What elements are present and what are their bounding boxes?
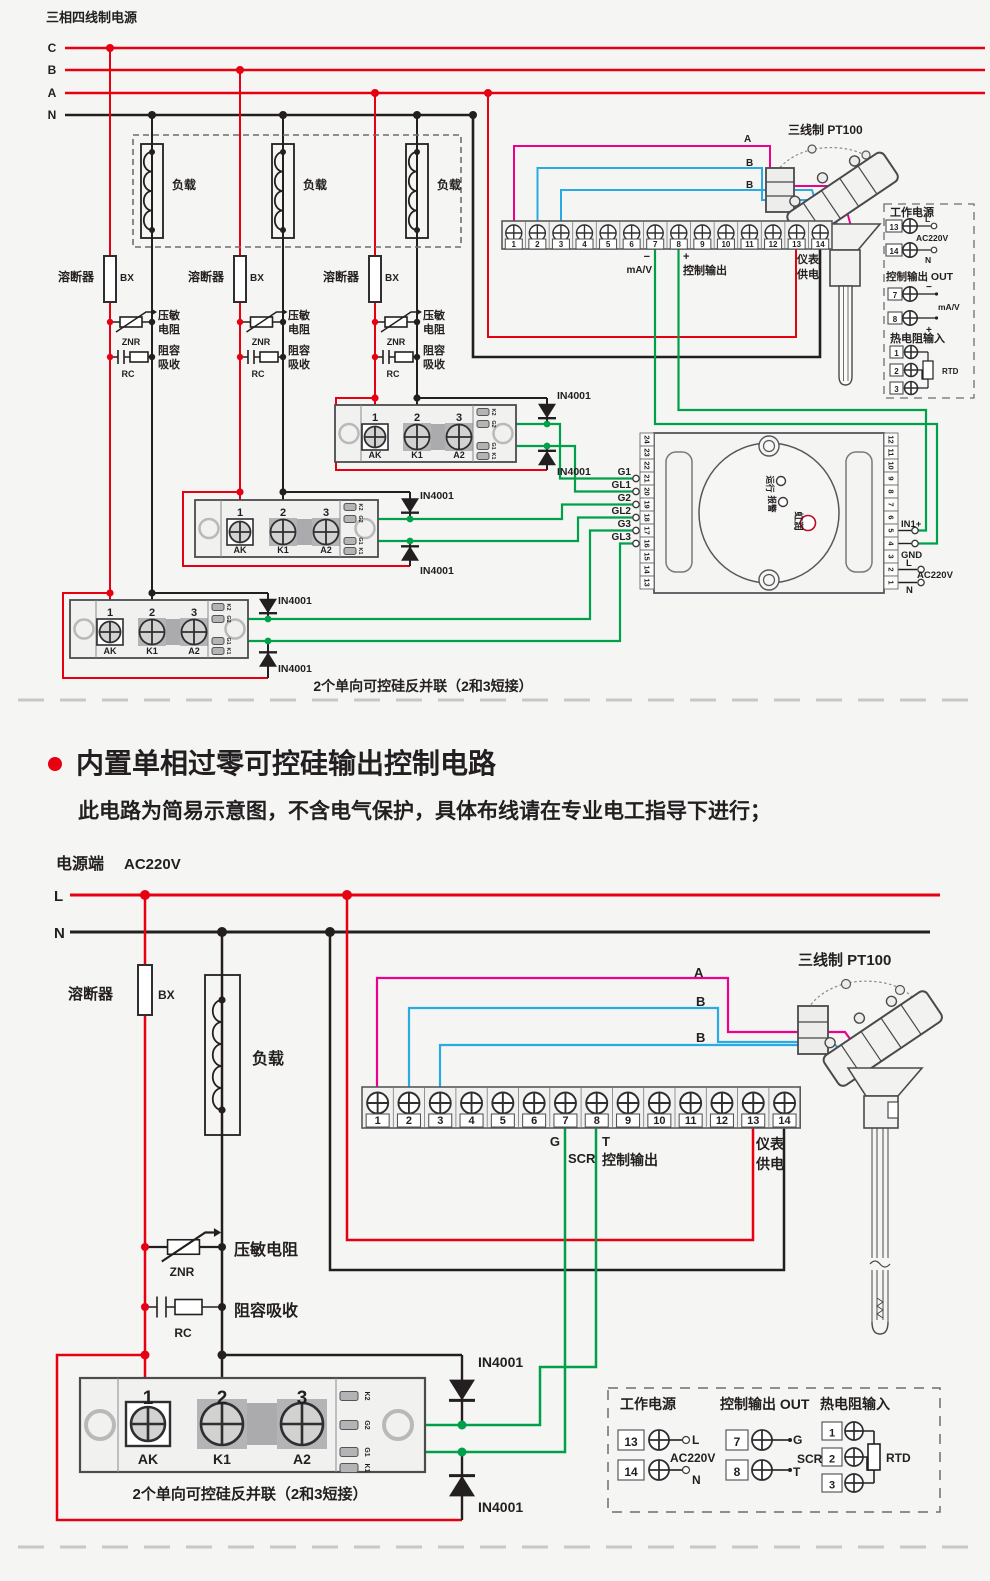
controller-n-label: N xyxy=(906,585,913,596)
junction-dot xyxy=(265,638,272,645)
legend-dot xyxy=(788,1468,792,1472)
legend-ac: AC220V xyxy=(670,1451,715,1465)
terminal-number: 11 xyxy=(685,1115,697,1127)
strip-ctrl-out: 控制输出 xyxy=(602,1152,658,1168)
diode-label: IN4001 xyxy=(557,466,591,478)
module-terminal-number: 2 xyxy=(414,412,420,424)
znr-label: 电阻 xyxy=(423,322,445,336)
gate-terminal-label: K2 xyxy=(490,408,496,415)
junction-dot xyxy=(218,1303,226,1311)
legend-rtd: RTD xyxy=(942,367,959,376)
legend-mav: mA/V xyxy=(938,302,960,312)
controller-terminal-number: 11 xyxy=(887,449,896,457)
junction-dot xyxy=(544,421,551,428)
legend-dot xyxy=(935,292,938,295)
rc-code: RC xyxy=(174,1326,192,1340)
controller-screw-bottom xyxy=(759,570,779,590)
junction-dot xyxy=(280,319,286,325)
controller-screw-top xyxy=(759,436,779,456)
gate-terminal xyxy=(340,1421,358,1430)
legend-terminal-number: 14 xyxy=(624,1465,638,1479)
gate-terminal xyxy=(212,616,224,623)
legend-t: T xyxy=(793,1465,801,1479)
strip-g: G xyxy=(550,1134,560,1149)
junction-dot xyxy=(237,319,243,325)
terminal-number: 5 xyxy=(606,240,611,249)
terminal-number: 14 xyxy=(816,240,825,249)
legend-terminal-number: 8 xyxy=(893,315,898,324)
gate-terminal-label: K1 xyxy=(225,647,231,654)
junction-dot xyxy=(107,319,113,325)
znr-label: 电阻 xyxy=(288,322,310,336)
resistor-icon xyxy=(260,352,278,362)
controller-terminal-number: 2 xyxy=(887,567,896,571)
legend-terminal-number: 13 xyxy=(624,1435,638,1449)
legend-rtd: RTD xyxy=(886,1451,911,1465)
fuse-label: 溶断器 xyxy=(323,269,360,284)
controller-terminal-number: 6 xyxy=(887,515,896,519)
controller-terminal-strip: 121110987654321 xyxy=(884,433,898,589)
legend-terminal-number: 8 xyxy=(734,1465,741,1479)
legend-out-title: 控制输出 OUT xyxy=(720,1396,810,1412)
legend-terminal-number: 7 xyxy=(734,1435,741,1449)
junction-dot xyxy=(414,319,420,325)
legend-plus: + xyxy=(926,325,932,336)
diode-label: IN4001 xyxy=(478,1354,523,1370)
junction-dot xyxy=(148,111,156,119)
controller-terminal-number: 3 xyxy=(887,554,896,558)
controller-terminal-strip: 242322212019181716151413 xyxy=(640,433,654,589)
terminal-ring xyxy=(633,488,639,494)
module-terminal-label: K1 xyxy=(213,1451,231,1467)
controller-l-label: L xyxy=(906,558,912,569)
rc-code: RC xyxy=(387,369,400,379)
controller-terminal-number: 1 xyxy=(887,580,896,584)
legend-rtd-resistor xyxy=(868,1444,880,1470)
gate-terminal xyxy=(344,504,356,511)
junction-dot xyxy=(236,488,243,495)
caption-top: 2个单向可控硅反并联（2和3短接） xyxy=(313,678,532,694)
junction-dot xyxy=(218,1243,226,1251)
sensor-hex-fitting xyxy=(766,168,794,212)
strip-meter-supply: 仪表 xyxy=(796,252,820,266)
wire-label-a: A xyxy=(744,134,751,145)
junction-dot xyxy=(237,354,243,360)
fuse-code: BX xyxy=(158,988,175,1002)
junction-dot xyxy=(407,516,414,523)
legend-rtd-title: 热电阻输入 xyxy=(820,1396,890,1412)
junction-dot xyxy=(325,927,335,937)
junction-dot xyxy=(265,616,272,623)
junction-dot xyxy=(371,89,379,97)
znr-code: ZNR xyxy=(170,1265,195,1279)
controller-terminal-number: 7 xyxy=(887,502,896,506)
gate-terminal-label: K2 xyxy=(357,503,363,510)
section-title: 内置单相过零可控硅输出控制电路 xyxy=(76,747,497,779)
diode-label: IN4001 xyxy=(278,663,312,675)
strip-meter-supply: 仪表 xyxy=(755,1136,785,1152)
terminal-number: 13 xyxy=(792,240,801,249)
terminal-number: 12 xyxy=(716,1115,728,1127)
junction-dot xyxy=(218,996,225,1003)
znr-code: ZNR xyxy=(387,337,406,347)
junction-dot xyxy=(371,394,378,401)
rc-label: 阻容吸收 xyxy=(234,1301,298,1320)
controller-terminal-number: 8 xyxy=(887,489,896,493)
gate-terminal-label: K1 xyxy=(357,547,363,554)
terminal-ring xyxy=(633,514,639,520)
brand-label: 虹润 xyxy=(792,511,804,530)
controller-terminal-number: 24 xyxy=(643,435,652,444)
junction-dot xyxy=(279,111,287,119)
junction-dot xyxy=(280,227,286,233)
module-terminal-number: 3 xyxy=(456,412,462,424)
legend-terminal-number: 1 xyxy=(829,1428,835,1440)
diode-label: IN4001 xyxy=(478,1499,523,1515)
resistor-icon xyxy=(395,352,413,362)
junction-dot xyxy=(407,538,414,545)
junction-dot xyxy=(218,1106,225,1113)
legend-dot xyxy=(788,1438,792,1442)
sensor-probe xyxy=(839,286,852,385)
sensor-screw-icon xyxy=(808,145,816,153)
controller-terminal-number: 23 xyxy=(643,448,652,456)
rc-label: 阻容 xyxy=(158,343,180,357)
phase-label-b: B xyxy=(48,63,57,77)
gate-label-gl3: GL3 xyxy=(612,532,632,543)
gate-terminal xyxy=(344,538,356,545)
module-terminal-number: 1 xyxy=(237,507,243,519)
gate-label-gl1: GL1 xyxy=(612,480,632,491)
sensor-screw-icon xyxy=(842,980,851,989)
diode-label: IN4001 xyxy=(420,565,454,577)
rc-label: 阻容 xyxy=(423,343,445,357)
gate-terminal-label: G1 xyxy=(490,442,496,449)
legend-n: N xyxy=(925,255,931,265)
gate-terminal xyxy=(340,1392,358,1401)
controller-terminal-number: 14 xyxy=(643,565,652,574)
terminal-number: 2 xyxy=(535,240,540,249)
gate-label-gl2: GL2 xyxy=(612,506,632,517)
terminal-number: 4 xyxy=(582,240,587,249)
load-label: 负载 xyxy=(437,177,461,192)
strip-plus: + xyxy=(683,251,689,263)
gate-terminal-label: G1 xyxy=(225,637,231,644)
supply-label: 电源端 xyxy=(56,854,104,873)
znr-label: 压敏电阻 xyxy=(234,1240,298,1259)
controller xyxy=(654,433,884,593)
line-label-n: N xyxy=(54,925,65,942)
terminal-number: 12 xyxy=(769,240,778,249)
legend-g: G xyxy=(793,1433,802,1447)
gate-label-g2: G2 xyxy=(618,493,632,504)
junction-dot xyxy=(217,927,227,937)
junction-dot xyxy=(458,1421,467,1430)
gate-terminal xyxy=(477,453,489,460)
legend-out-title: 控制输出 OUT xyxy=(886,270,954,283)
scr-module: 1AK2K13A2K2G2G1K1 xyxy=(70,600,248,658)
legend-terminal-number: 2 xyxy=(894,367,899,376)
legend-minus: − xyxy=(926,282,932,293)
junction-dot xyxy=(141,1303,149,1311)
controller-ac-label: AC220V xyxy=(917,570,954,581)
caption-bottom: 2个单向可控硅反并联（2和3短接） xyxy=(132,1485,367,1503)
legend-power-title: 工作电源 xyxy=(620,1396,676,1412)
junction-dot xyxy=(280,354,286,360)
strip-ctrl-out: 控制输出 xyxy=(683,263,727,277)
rc-label: 阻容 xyxy=(288,343,310,357)
phase-label-n: N xyxy=(48,108,57,122)
module-terminal-label: AK xyxy=(369,450,382,460)
diode-label: IN4001 xyxy=(557,390,591,402)
znr-code: ZNR xyxy=(122,337,141,347)
wire-label-b2: B xyxy=(696,1030,705,1045)
gate-terminal-label: K2 xyxy=(225,603,231,610)
gate-terminal-label: K2 xyxy=(363,1392,370,1401)
junction-dot xyxy=(469,111,477,119)
junction-dot xyxy=(413,394,420,401)
terminal-number: 8 xyxy=(677,240,682,249)
gate-terminal xyxy=(212,638,224,645)
terminal-number: 13 xyxy=(747,1115,759,1127)
module-terminal-number: 1 xyxy=(372,412,378,424)
terminal-number: 3 xyxy=(437,1115,443,1127)
junction-dot xyxy=(149,227,155,233)
terminal-number: 14 xyxy=(778,1115,791,1127)
alarm-led-label: 报警 xyxy=(767,495,777,513)
module-terminal-number: 2 xyxy=(217,1388,228,1409)
controller-terminal-number: 10 xyxy=(887,461,896,469)
module-terminal-number: 2 xyxy=(149,607,155,619)
fuse-icon xyxy=(234,256,246,302)
sensor-label-top: 三线制 PT100 xyxy=(788,122,863,137)
strip-minus: − xyxy=(644,251,650,263)
fuse-icon xyxy=(104,256,116,302)
module-terminal-number: 1 xyxy=(143,1388,154,1409)
module-terminal-label: K1 xyxy=(411,450,423,460)
gate-terminal xyxy=(344,548,356,555)
controller-terminal-number: 15 xyxy=(643,552,652,560)
terminal-number: 5 xyxy=(500,1115,506,1127)
run-led xyxy=(777,477,786,486)
gate-terminal xyxy=(344,516,356,523)
legend-rtd-resistor xyxy=(923,361,933,379)
module-terminal-label: A2 xyxy=(453,450,465,460)
run-led-label: 运行 xyxy=(765,475,775,493)
terminal-number: 4 xyxy=(468,1115,475,1127)
sensor-neck xyxy=(830,250,860,286)
terminal-number: 10 xyxy=(653,1115,665,1127)
gate-label-g1: G1 xyxy=(618,467,632,478)
fuse-code: BX xyxy=(250,273,264,284)
gate-terminal xyxy=(212,648,224,655)
wire-label-b1: B xyxy=(746,158,753,169)
load-label: 负载 xyxy=(303,177,327,192)
module-terminal-number: 2 xyxy=(280,507,286,519)
junction-dot xyxy=(236,66,244,74)
controller-terminal-number: 20 xyxy=(643,487,652,495)
diode-label: IN4001 xyxy=(278,595,312,607)
terminal-number: 7 xyxy=(562,1115,568,1127)
junction-dot xyxy=(544,443,551,450)
junction-dot xyxy=(140,890,150,900)
terminal-ring xyxy=(683,1437,690,1444)
znr-label: 压敏 xyxy=(288,308,311,322)
terminal-ring xyxy=(683,1467,690,1474)
module-terminal-number: 1 xyxy=(107,607,113,619)
legend-terminal-number: 3 xyxy=(894,385,899,394)
terminal-number: 3 xyxy=(559,240,564,249)
resistor-icon xyxy=(175,1300,202,1315)
module-terminal-number: 3 xyxy=(191,607,197,619)
bullet-icon xyxy=(48,757,62,771)
znr-label: 压敏 xyxy=(423,308,446,322)
scr-module: 1AK2K13A2K2G2G1K1 xyxy=(195,500,378,557)
junction-dot xyxy=(106,44,114,52)
legend-scr: SCR xyxy=(797,1452,823,1466)
terminal-ring xyxy=(931,247,937,253)
resistor-icon xyxy=(130,352,148,362)
junction-dot xyxy=(107,354,113,360)
module-terminal-number: 3 xyxy=(323,507,329,519)
sensor-label-bottom: 三线制 PT100 xyxy=(798,951,891,969)
gate-terminal-label: G2 xyxy=(363,1420,370,1429)
junction-dot xyxy=(149,354,155,360)
terminal-ring xyxy=(931,223,937,229)
wiring-diagram: 1234567891011121314123456789101112131424… xyxy=(0,0,990,1581)
terminal-ring xyxy=(633,501,639,507)
legend-terminal-number: 3 xyxy=(829,1480,835,1492)
junction-dot xyxy=(149,319,155,325)
rc-code: RC xyxy=(252,369,265,379)
module-terminal-label: AK xyxy=(234,545,247,555)
terminal-strip: 1234567891011121314 xyxy=(502,221,832,249)
znr-label: 电阻 xyxy=(158,322,180,336)
terminal-ring xyxy=(633,540,639,546)
module-terminal-label: A2 xyxy=(320,545,332,555)
load-label: 负载 xyxy=(252,1049,284,1068)
junction-dot xyxy=(372,354,378,360)
junction-dot xyxy=(141,1243,149,1251)
legend-ac: AC220V xyxy=(916,233,948,243)
controller-terminal-number: 19 xyxy=(643,500,652,508)
terminal-number: 10 xyxy=(721,240,730,249)
terminal-number: 7 xyxy=(653,240,658,249)
legend-terminal-number: 13 xyxy=(890,223,899,232)
terminal-number: 11 xyxy=(745,240,754,249)
gate-terminal xyxy=(340,1464,358,1473)
module-terminal-label: AK xyxy=(104,646,117,656)
gate-label-g3: G3 xyxy=(618,519,632,530)
strip-meter-supply: 供电 xyxy=(755,1156,784,1172)
module-terminal-number: 3 xyxy=(297,1388,308,1409)
section-subtitle: 此电路为简易示意图，不含电气保护，具体布线请在专业电工指导下进行； xyxy=(78,799,771,823)
rc-label: 吸收 xyxy=(288,357,310,371)
module-terminal-label: A2 xyxy=(188,646,200,656)
controller-terminal-number: 13 xyxy=(643,578,652,586)
fuse-code: BX xyxy=(385,273,399,284)
terminal-number: 9 xyxy=(625,1115,631,1127)
controller-terminal-number: 9 xyxy=(887,476,896,480)
supply-voltage: AC220V xyxy=(124,856,181,873)
terminal-number: 1 xyxy=(512,240,517,249)
legend-l: L xyxy=(925,214,930,224)
wire-label-b1: B xyxy=(696,994,705,1009)
gate-terminal xyxy=(477,443,489,450)
znr-code: ZNR xyxy=(252,337,271,347)
gate-terminal xyxy=(477,421,489,428)
legend-n: N xyxy=(692,1473,701,1487)
fuse-label: 溶断器 xyxy=(68,985,114,1003)
legend-l: L xyxy=(692,1433,699,1447)
legend-terminal-number: 2 xyxy=(829,1454,835,1466)
module-terminal-label: K1 xyxy=(146,646,158,656)
fuse-code: BX xyxy=(120,273,134,284)
strip-mav: mA/V xyxy=(626,265,652,276)
gate-terminal xyxy=(340,1448,358,1457)
phase-label-a: A xyxy=(48,86,57,100)
module-terminal-label: K1 xyxy=(277,545,289,555)
gate-terminal-label: G1 xyxy=(363,1447,370,1456)
sensor-neck-detail xyxy=(888,1102,898,1118)
controller-terminal-number: 12 xyxy=(887,435,896,443)
terminal-ring xyxy=(912,540,918,546)
diode-label: IN4001 xyxy=(420,490,454,502)
gate-terminal xyxy=(477,409,489,416)
junction-dot xyxy=(280,149,286,155)
znr-label: 压敏 xyxy=(158,308,181,322)
junction-dot xyxy=(484,89,492,97)
controller-terminal-number: 5 xyxy=(887,528,896,532)
junction-dot xyxy=(141,1351,150,1360)
controller-terminal-number: 21 xyxy=(643,474,652,482)
phase-label-c: C xyxy=(48,41,57,55)
gate-terminal xyxy=(212,604,224,611)
wire-label-a: A xyxy=(694,965,704,980)
junction-dot xyxy=(148,589,155,596)
gate-terminal-label: G2 xyxy=(357,515,363,522)
load-label: 负载 xyxy=(172,177,196,192)
terminal-number: 1 xyxy=(375,1115,381,1127)
junction-dot xyxy=(414,227,420,233)
rc-label: 吸收 xyxy=(423,357,445,371)
top-title: 三相四线制电源 xyxy=(46,10,137,25)
controller-terminal-number: 16 xyxy=(643,539,652,547)
terminal-ring xyxy=(633,475,639,481)
sensor-screw-icon xyxy=(896,986,905,995)
controller-face xyxy=(699,443,839,583)
legend-dot xyxy=(935,316,938,319)
terminal-number: 9 xyxy=(700,240,705,249)
scr-module: 1AK2K13A2K2G2G1K1 xyxy=(335,405,516,462)
terminal-strip: 1234567891011121314 xyxy=(362,1087,800,1128)
gate-terminal-label: K1 xyxy=(363,1464,370,1473)
strip-t: T xyxy=(602,1134,610,1149)
gate-terminal-label: K1 xyxy=(490,452,496,459)
terminal-number: 6 xyxy=(531,1115,537,1127)
alarm-led xyxy=(779,498,788,507)
gate-terminal-label: G2 xyxy=(490,420,496,427)
junction-dot xyxy=(218,1351,227,1360)
terminal-ring xyxy=(633,527,639,533)
line-label-l: L xyxy=(54,888,63,905)
fuse-icon xyxy=(369,256,381,302)
fuse-label: 溶断器 xyxy=(58,269,95,284)
legend-terminal-number: 14 xyxy=(890,247,899,256)
sensor-hex-fitting xyxy=(798,1006,828,1054)
wire-label-b2: B xyxy=(746,180,753,191)
legend-terminal-number: 7 xyxy=(893,291,898,300)
